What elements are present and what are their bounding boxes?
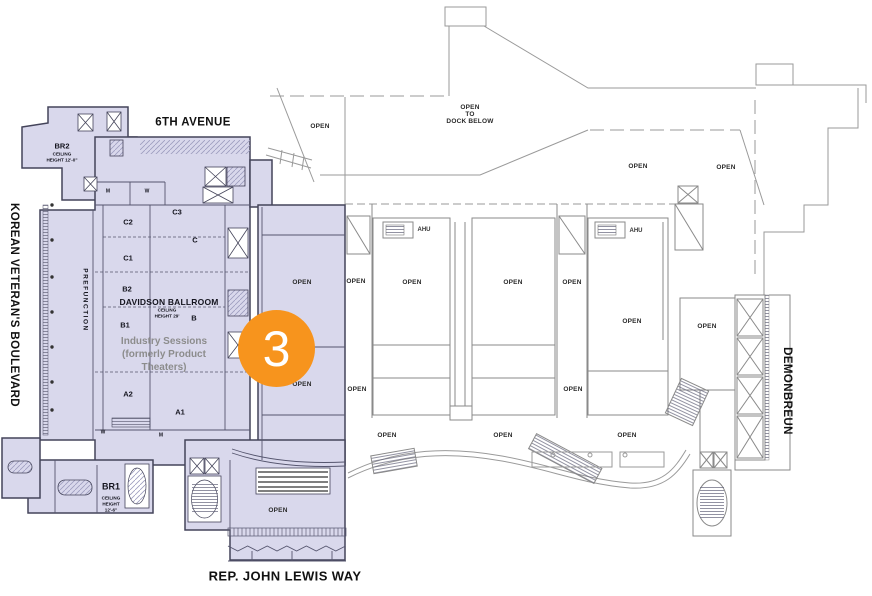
escalator-icon xyxy=(192,484,218,514)
restroom-w-label: W xyxy=(101,431,106,436)
open-label: OPEN xyxy=(268,508,287,515)
open-label: OPEN xyxy=(402,280,421,287)
equipment xyxy=(8,461,32,473)
industry-sessions-note: (formerly Product xyxy=(122,350,206,360)
ballroom-ceiling-note: HEIGHT 29' xyxy=(155,315,180,320)
section-a2-label: A2 xyxy=(123,390,133,398)
open-to-dock-label: DOCK BELOW xyxy=(446,119,493,126)
open-label: OPEN xyxy=(292,382,311,389)
section-c2-label: C2 xyxy=(123,218,133,226)
hall-3 xyxy=(588,218,668,415)
br2-label: BR2 xyxy=(54,142,69,150)
restroom-m-label: M xyxy=(106,190,110,195)
street-label-rep-john-lewis-way: REP. JOHN LEWIS WAY xyxy=(209,570,362,583)
br1-table xyxy=(58,480,92,495)
stair-icon xyxy=(128,468,146,504)
street-label-korean-veterans-blvd: KOREAN VETERAN'S BOULEVARD xyxy=(7,203,19,407)
open-label: OPEN xyxy=(622,319,641,326)
industry-sessions-note: Theaters) xyxy=(141,363,186,373)
floorplan-page: 6TH AVENUE KOREAN VETERAN'S BOULEVARD DE… xyxy=(0,0,872,596)
entrance-canopy xyxy=(228,528,346,536)
ahu-label: AHU xyxy=(630,228,643,234)
street-label-demonbreun: DEMONBREUN xyxy=(780,347,792,435)
open-label: OPEN xyxy=(563,387,582,394)
section-b2-label: B2 xyxy=(122,285,132,293)
section-b1-label: B1 xyxy=(120,321,130,329)
br1-ceiling-note: 12'-6" xyxy=(105,509,117,514)
level-3-marker[interactable]: 3 xyxy=(238,310,315,387)
ahu-label: AHU xyxy=(418,227,431,233)
stair-icon xyxy=(228,290,248,316)
davidson-ballroom-label: DAVIDSON BALLROOM xyxy=(119,298,218,307)
br1-ceiling-note: CEILING xyxy=(102,497,121,502)
open-label: OPEN xyxy=(697,324,716,331)
open-label: OPEN xyxy=(716,165,735,172)
ahu-unit-icon xyxy=(598,225,616,235)
stair-icon xyxy=(110,140,123,156)
east-wing xyxy=(663,186,790,536)
open-label: OPEN xyxy=(377,433,396,440)
window-band xyxy=(140,140,250,154)
glass-wall xyxy=(43,205,48,435)
street-label-6th-avenue: 6TH AVENUE xyxy=(155,117,231,129)
open-label: OPEN xyxy=(292,280,311,287)
open-label: OPEN xyxy=(310,124,329,131)
section-c3-label: C3 xyxy=(172,208,182,216)
prefunction-label: PREFUNCTION xyxy=(81,268,88,331)
industry-sessions-note: Industry Sessions xyxy=(121,337,207,347)
open-label: OPEN xyxy=(617,433,636,440)
escalator-icon xyxy=(700,487,724,520)
section-c1-label: C1 xyxy=(123,254,133,262)
open-label: OPEN xyxy=(562,280,581,287)
br1-label: BR1 xyxy=(102,483,120,492)
open-label: OPEN xyxy=(628,164,647,171)
br2-ceiling-note: HEIGHT 12'-0" xyxy=(46,159,77,164)
br2-ceiling-note: CEILING xyxy=(53,153,72,158)
stair-icon xyxy=(227,167,245,186)
section-b-label: B xyxy=(191,314,196,322)
open-label: OPEN xyxy=(347,387,366,394)
open-label: OPEN xyxy=(493,433,512,440)
hall-1 xyxy=(373,218,450,415)
section-a1-label: A1 xyxy=(175,408,185,416)
section-c-label: C xyxy=(192,236,197,244)
open-label: OPEN xyxy=(346,279,365,286)
level-3-marker-number: 3 xyxy=(263,320,291,378)
open-label: OPEN xyxy=(503,280,522,287)
escalator-icon xyxy=(112,418,150,427)
hall-2 xyxy=(472,218,555,415)
ahu-unit-icon xyxy=(386,225,404,235)
restroom-w-label: W xyxy=(145,190,150,195)
restroom-m-label: M xyxy=(159,434,163,439)
br1-ceiling-note: HEIGHT xyxy=(102,503,119,508)
south-walkway xyxy=(348,434,690,488)
stair-icon xyxy=(371,448,417,473)
curtain-wall xyxy=(765,295,769,460)
exhibit-halls xyxy=(345,204,668,420)
ballroom-ceiling-note: CEILING xyxy=(158,309,177,314)
